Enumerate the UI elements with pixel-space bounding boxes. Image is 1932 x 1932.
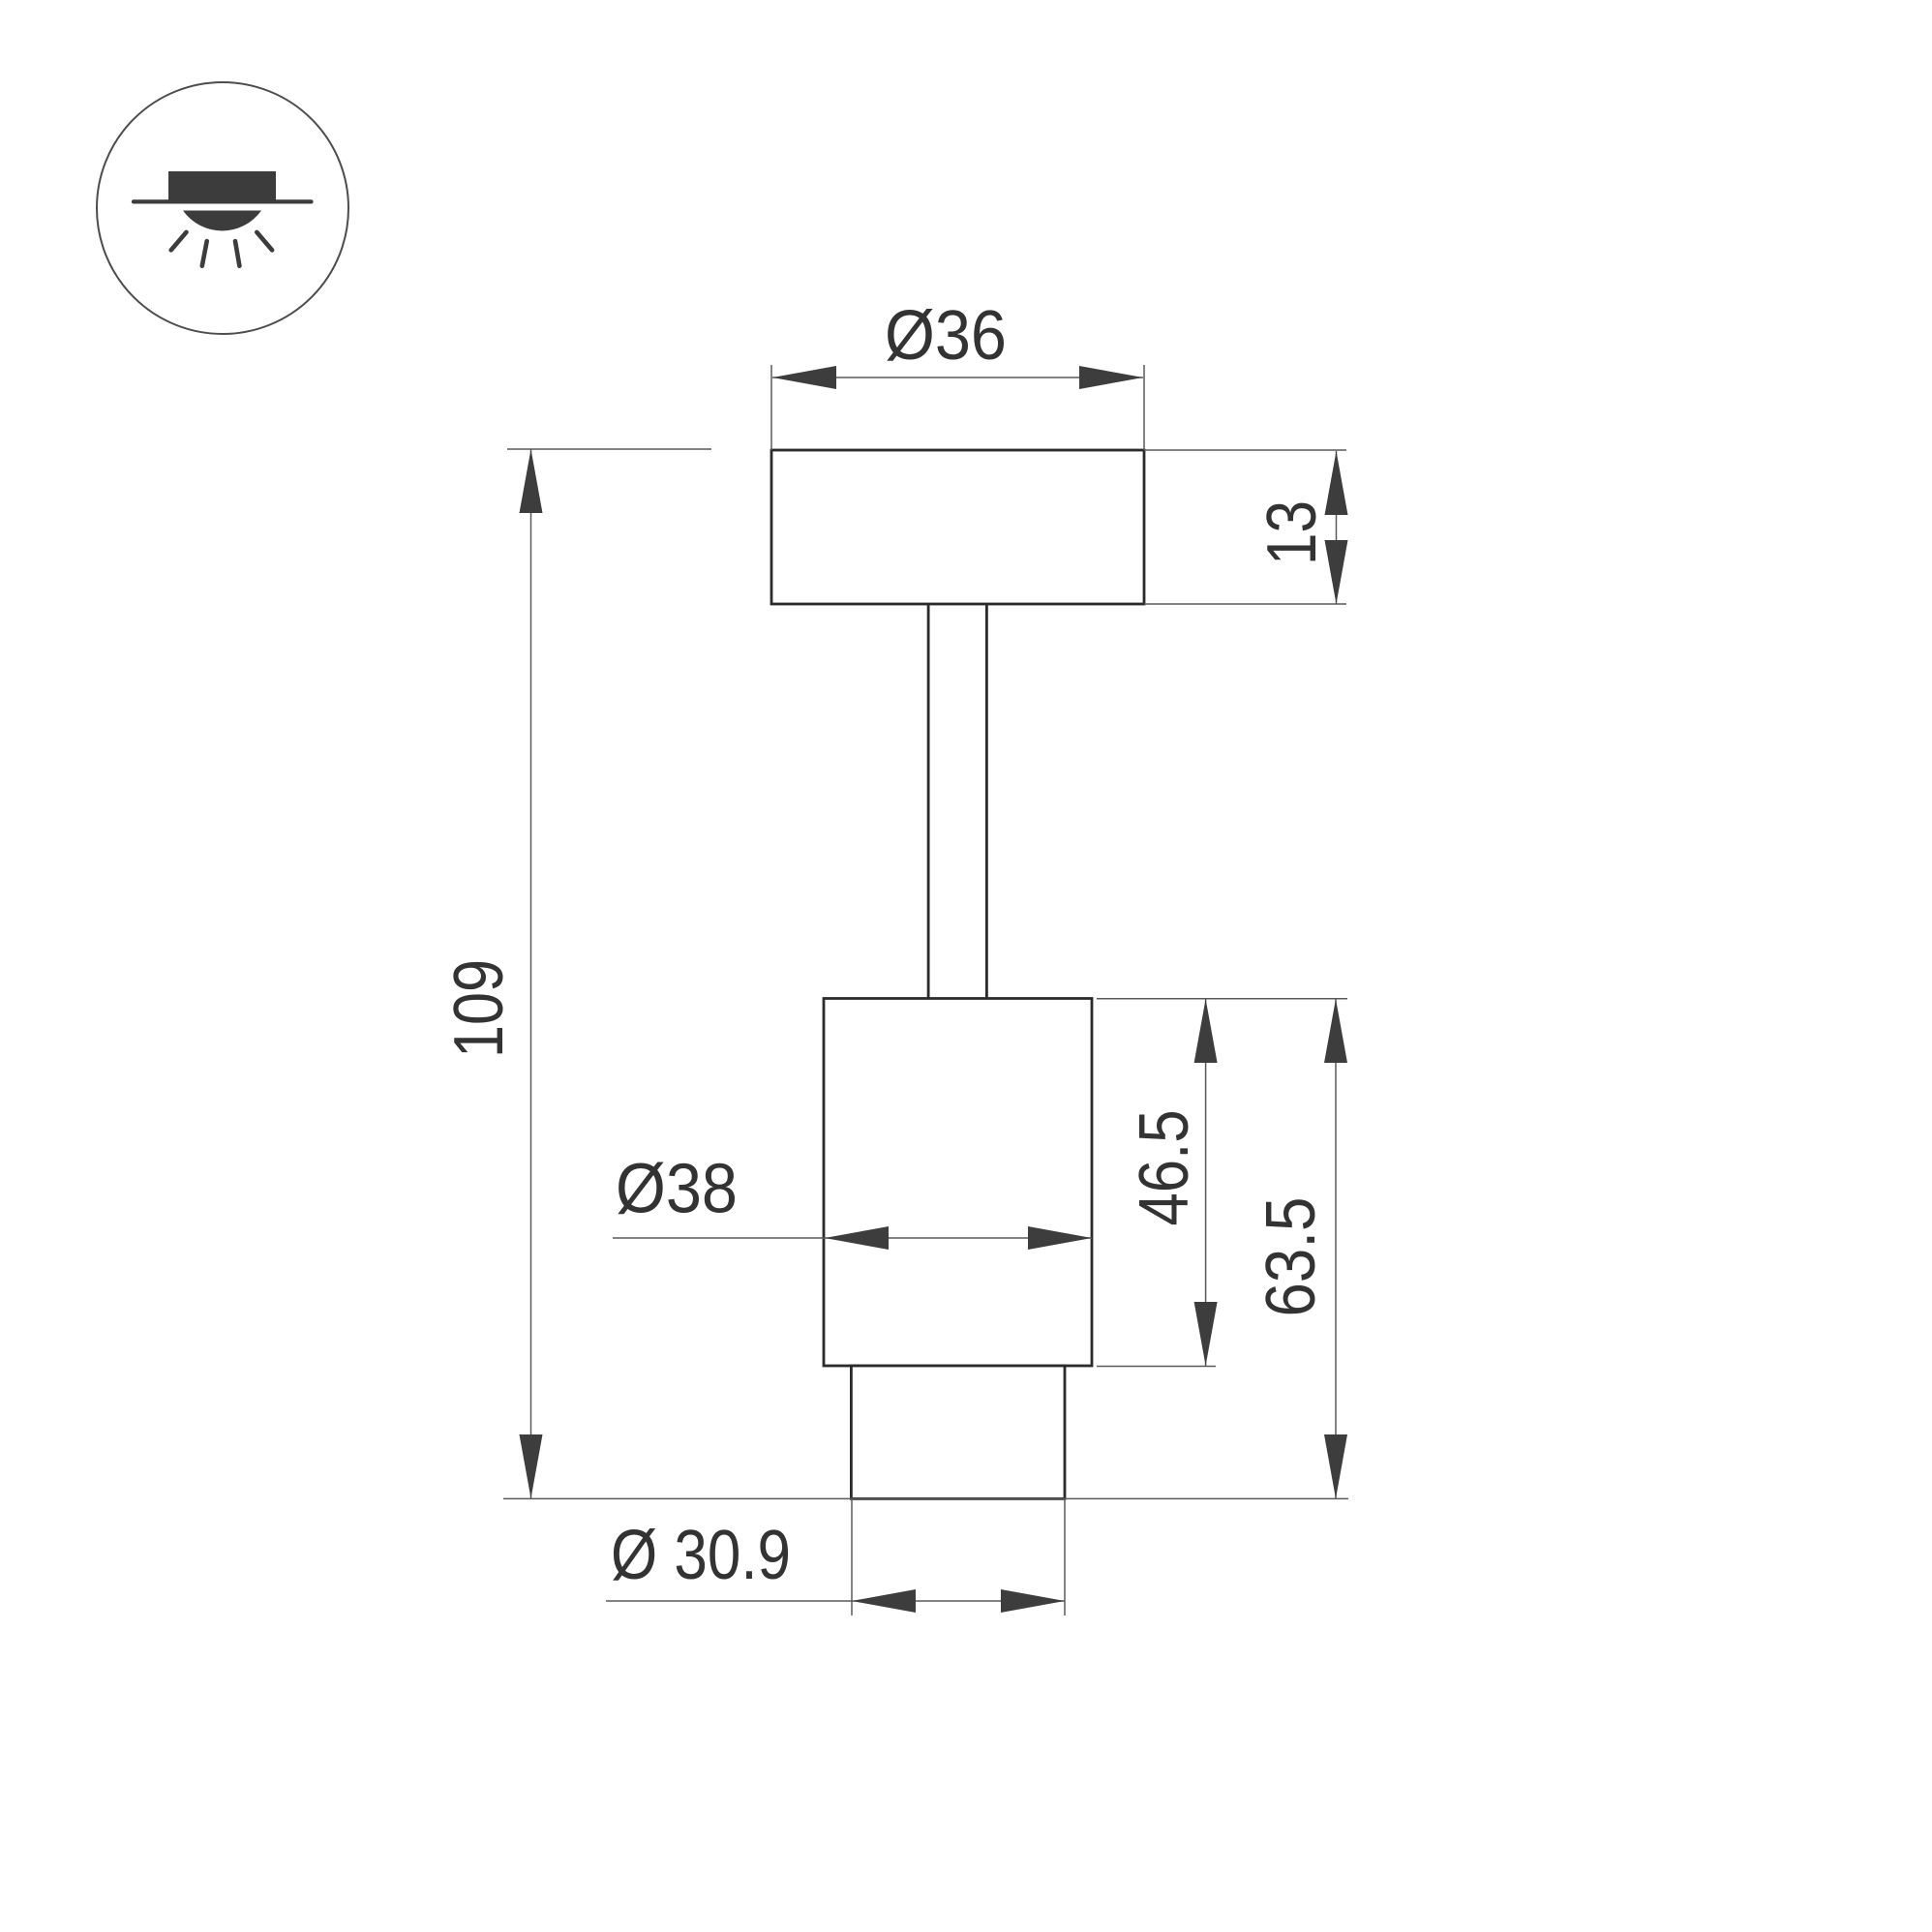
svg-text:Ø 30.9: Ø 30.9: [611, 1517, 791, 1594]
svg-text:46.5: 46.5: [1126, 1110, 1203, 1226]
svg-text:63.5: 63.5: [1253, 1197, 1330, 1317]
svg-text:Ø38: Ø38: [616, 1151, 738, 1228]
svg-text:13: 13: [1253, 500, 1331, 565]
svg-text:109: 109: [440, 959, 518, 1058]
svg-text:Ø36: Ø36: [885, 297, 1007, 375]
